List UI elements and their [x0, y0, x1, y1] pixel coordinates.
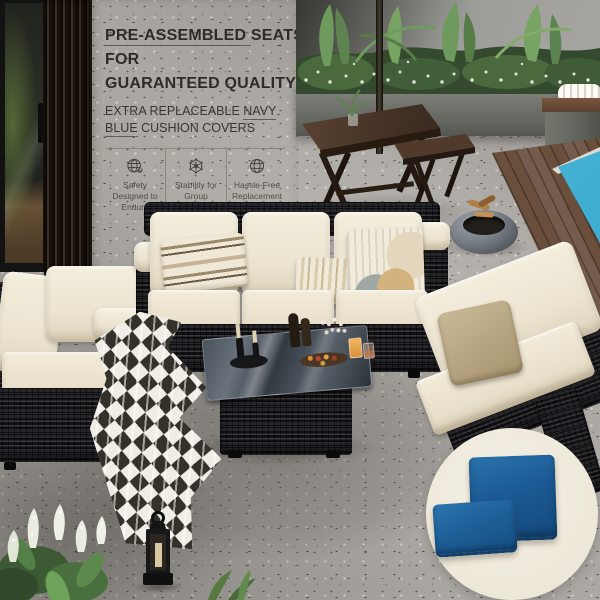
- flower-bouquet: [321, 320, 325, 324]
- table-foot: [228, 450, 242, 458]
- lantern-candle: [155, 543, 162, 567]
- headline-line2: FOR: [105, 48, 285, 72]
- table-foot: [326, 450, 340, 458]
- bench-leg: [444, 153, 464, 198]
- serving-tray: [299, 351, 348, 369]
- wood-slat-wall: [44, 0, 92, 306]
- lantern-base: [143, 573, 173, 585]
- door-handle: [38, 103, 43, 143]
- coffee-table: [180, 322, 372, 464]
- candle-lantern: [143, 511, 173, 589]
- table-plant: [330, 86, 374, 128]
- grass-sprig: [198, 566, 270, 600]
- globe-wrench-icon: [125, 156, 145, 176]
- drink-glass: [348, 337, 363, 358]
- headline-underlined: PRE-ASSEMBLED: [105, 27, 246, 46]
- wine-bottle: [300, 318, 311, 347]
- tropical-plants: [296, 0, 600, 94]
- candlestick: [236, 338, 245, 359]
- lantern-cap: [146, 521, 170, 529]
- navy-cushion-inset-circle: [426, 428, 598, 600]
- fire-pit-opening: [463, 215, 505, 235]
- globe-icon: [247, 156, 267, 176]
- tan-pillow: [436, 299, 524, 387]
- navy-lumbar-cushion-cover: [432, 499, 517, 558]
- molecule-icon: [186, 156, 206, 176]
- candle-base-plate: [229, 354, 268, 370]
- product-photo-canvas: PRE-ASSEMBLED SEATS FOR GUARANTEED QUALI…: [0, 0, 600, 600]
- panel-content: PRE-ASSEMBLED SEATS FOR GUARANTEED QUALI…: [90, 0, 298, 219]
- candlestick: [252, 342, 259, 358]
- flowering-bush: [0, 452, 144, 600]
- headline-line1: PRE-ASSEMBLED SEATS: [105, 24, 285, 48]
- drink-glass: [363, 342, 375, 359]
- headline-line3: GUARANTEED QUALITY: [105, 72, 285, 96]
- subheadline-line2: BLUE CUSHION COVERS: [105, 120, 285, 137]
- glass-door: [0, 0, 48, 268]
- subheadline-line1: EXTRA REPLACEABLE NAVY: [105, 103, 285, 120]
- bench-wood-top: [542, 98, 600, 112]
- feature-label: Hassle-Free Replacement: [228, 180, 286, 202]
- lantern-body: [146, 529, 170, 575]
- striped-lumbar-pillow: [160, 232, 248, 293]
- fire-pit: [450, 204, 524, 260]
